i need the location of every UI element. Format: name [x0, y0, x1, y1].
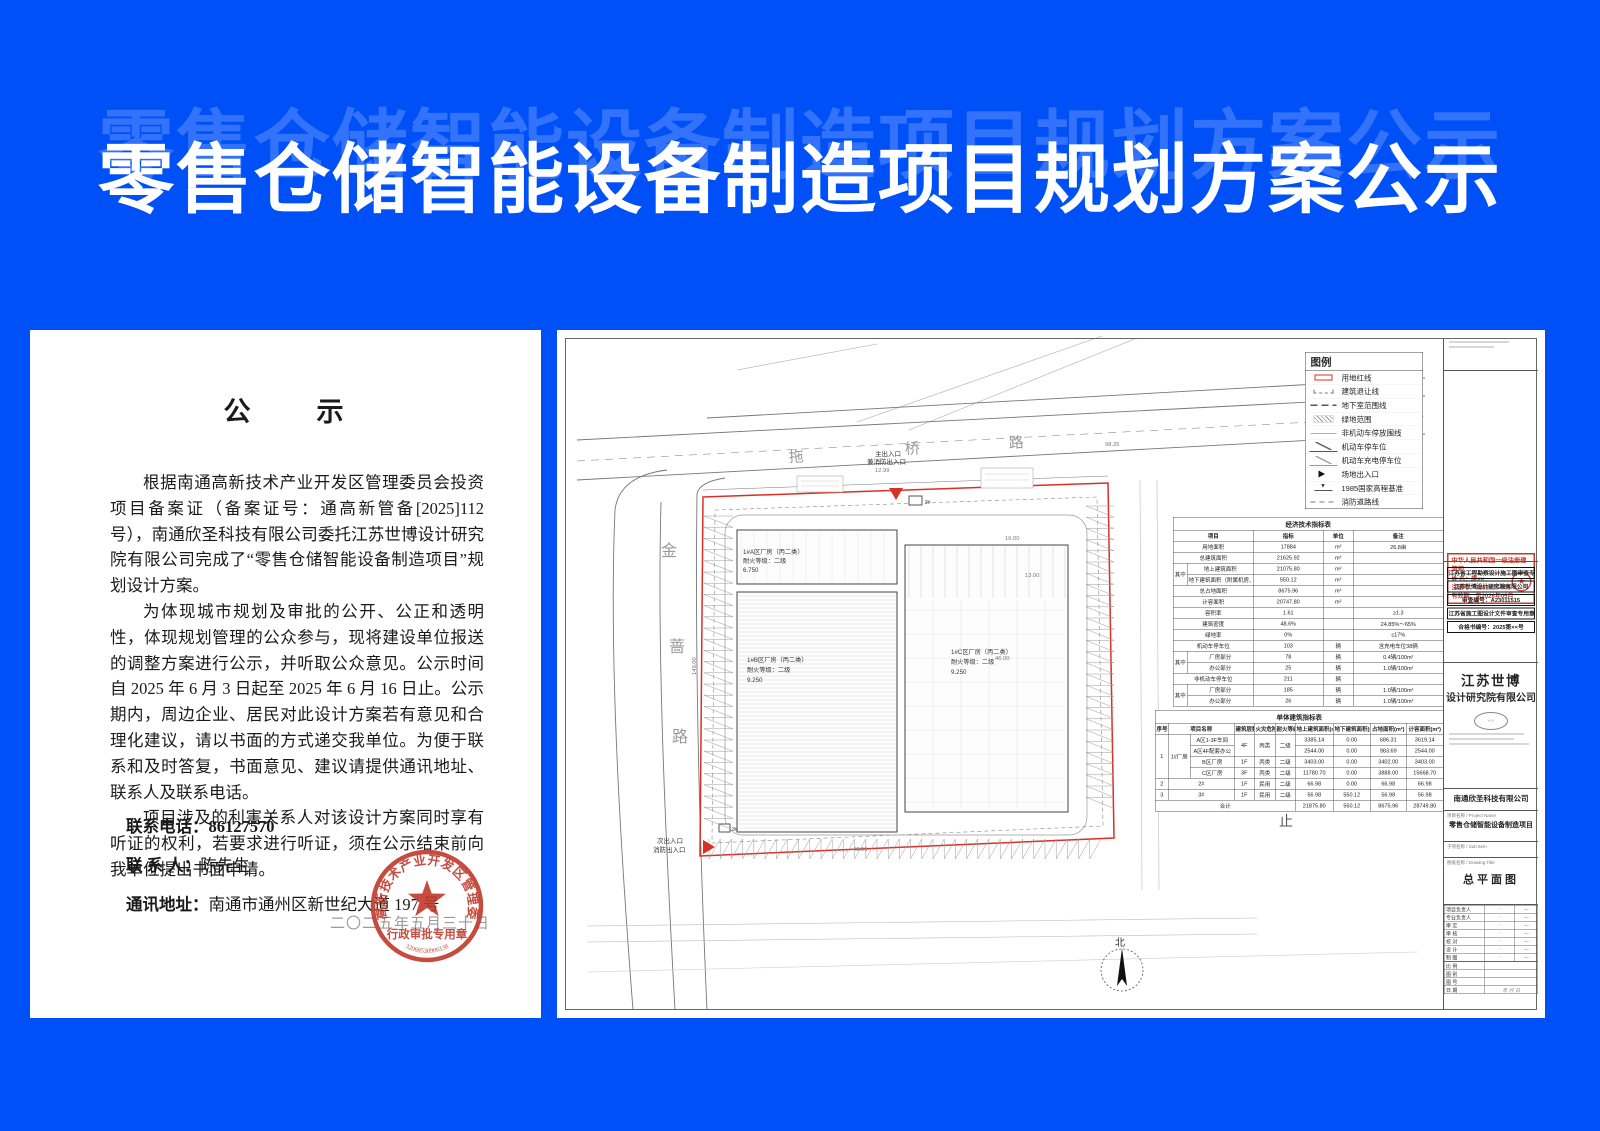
north-arrow: 北 [1101, 937, 1143, 991]
table-row: 办公部分26辆1.0辆/100m² [1173, 695, 1443, 706]
dimension-text: 46.00 [995, 656, 1010, 662]
meta-row: 比 例 [1444, 962, 1538, 970]
page-title: 零售仓储智能设备制造项目规划方案公示 [0, 118, 1600, 228]
firm-seal-icon: 〰 [1474, 712, 1508, 730]
table-row: 22#1F民用二级66.980.0066.9866.98 [1155, 778, 1443, 789]
audit-stamp: 江苏省施工图设计文件审查专用章 [1447, 608, 1535, 620]
legend-item: 机动车充电停车位 [1306, 454, 1423, 468]
page: { "colors": {"background_blue": "#0050f8… [0, 0, 1600, 1131]
table2-title: 单体建筑指标表 [1155, 710, 1444, 723]
building-c [905, 545, 1068, 812]
svg-text:耐火等级：二级: 耐火等级：二级 [743, 557, 786, 565]
legend-item-label: 机动车充电停车位 [1342, 455, 1402, 466]
tri-symbol-icon [1310, 469, 1338, 479]
road-name-char: 桥 [904, 440, 920, 458]
table-row: 地下建筑面积（附属机房、消防泵房）550.12m² [1173, 574, 1443, 585]
title-block: 中华人民共和国一级注册建筑师 姓 名：唐×× 注册号：3201826-005 有… [1443, 338, 1538, 1010]
signature-row: 校 对··〜 [1444, 937, 1538, 945]
firedash-symbol-icon [1310, 497, 1338, 507]
setback-symbol-icon [1310, 386, 1338, 396]
svg-text:1#B区厂房（丙二类）: 1#B区厂房（丙二类） [747, 656, 808, 664]
legend: 图例 用地红线建筑退让线地下室范围线绿地范围非机动车停放围线机动车停车位机动车充… [1305, 352, 1423, 509]
svg-text:32068530906138: 32068530906138 [404, 943, 450, 955]
building-a [737, 530, 897, 584]
road-name-char: 金 [661, 542, 677, 560]
zmark2-symbol-icon [1310, 455, 1338, 466]
table-row: 建筑密度48.6%24.85%～65% [1173, 618, 1443, 629]
design-firm-name: 江苏世博 [1444, 670, 1538, 690]
audit-stamp: 江苏省工程勘察设计施工图审查专用章 [1447, 567, 1535, 579]
revision-note [1444, 341, 1538, 371]
legend-item-label: 地下室范围线 [1342, 400, 1387, 411]
meta-row: 图 号 [1444, 978, 1538, 986]
dimension-line [703, 476, 1108, 490]
road-name-char: 拖 [788, 448, 804, 466]
official-seal: 南通高新技术产业开发区管理委员会 行政审批专用章 32068530906138 [352, 831, 502, 981]
meta-grid: 比 例图 别图 号日 期年 月 日 [1444, 962, 1538, 995]
seal-center-title: 行政审批专用章 [386, 927, 468, 941]
legend-item-label: 1985国家高程基准 [1342, 483, 1404, 494]
svg-text:9.250: 9.250 [951, 669, 967, 676]
table1-title: 经济技术指标表 [1173, 517, 1444, 530]
legend-item: 绿地范围 [1306, 412, 1423, 426]
table-row: A区4F配套办公2544.000.00983.692544.00 [1155, 745, 1443, 756]
table-row: 非机动车停车位211辆 [1173, 673, 1443, 684]
stray-label: 止 [1279, 813, 1293, 829]
svg-text:1#C区厂房（丙二类）: 1#C区厂房（丙二类） [951, 648, 1012, 656]
thin-symbol-icon [1310, 428, 1338, 438]
signature-row: 专业负责人··〜 [1444, 913, 1538, 921]
main-entrance-label: 主出入口 [875, 449, 901, 458]
legend-item: 机动车停车位 [1306, 440, 1423, 454]
stamp-section: 中华人民共和国一级注册建筑师 姓 名：唐×× 注册号：3201826-005 有… [1444, 371, 1538, 562]
legend-item: 非机动车停放围线 [1306, 426, 1423, 440]
subitem-box: 子项名称 / Sub Item [1444, 842, 1538, 858]
dash-symbol-icon [1310, 400, 1338, 410]
road-name-char: 路 [672, 728, 688, 746]
notice-panel: 公 示 根据南通高新技术产业开发区管理委员会投资项目备案证（备案证号：通高新管备… [30, 330, 541, 1018]
table-row: 其中厂房部分78辆0.4辆/100m² [1173, 651, 1443, 662]
seal-star-icon [408, 880, 446, 916]
signature-row: 审 定··〜 [1444, 921, 1538, 929]
signature-row: 设 计··〜 [1444, 945, 1538, 953]
legend-item-label: 建筑退让线 [1342, 386, 1380, 397]
hatch-symbol-icon [1310, 414, 1338, 424]
sheet-name-box: 图纸名称 / Drawing Title 总平面图 [1444, 858, 1538, 905]
meta-row: 日 期年 月 日 [1444, 986, 1538, 994]
dimension-text: 40.00 [853, 847, 868, 853]
main-entrance-sublabel: 兼消防出入口 [867, 457, 906, 466]
svg-text:1#A区厂房（丙二类）: 1#A区厂房（丙二类） [743, 548, 804, 556]
audit-stamp: 合格书编号：2025第××号 [1447, 621, 1535, 633]
legend-item: 消防道路线 [1306, 495, 1423, 508]
table-row: B区厂房1F丙类二级3403.000.003402.003403.00 [1155, 756, 1443, 767]
road-name-char: 蔷 [669, 638, 685, 656]
table-row: 容积率1.61≥1.3 [1173, 607, 1443, 618]
economic-indicator-table: 经济技术指标表 项目指标单位备注用地面积17884m²26.8亩总建筑面积216… [1173, 517, 1443, 707]
site-plan-sheet: 拖 桥 路 金 蔷 路 [557, 330, 1545, 1018]
signature-row: 审 核··〜 [1444, 929, 1538, 937]
table-row: 总占地面积8675.96m² [1173, 585, 1443, 596]
legend-item-label: 机动车停车位 [1342, 441, 1387, 452]
project-name-box: 项目名称 / Project Name 零售仓储智能设备制造项目 [1444, 811, 1538, 842]
secondary-entrance-sublabel: 消防出入口 [653, 845, 686, 854]
legend-item-label: 非机动车停放围线 [1342, 428, 1402, 439]
secondary-entrance-label: 次出入口 [657, 836, 683, 845]
table-row: C区厂房3F丙类二级11780.700.003888.0015668.70 [1155, 767, 1443, 778]
dimension-text: 12.99 [875, 468, 890, 474]
table-row: 计容面积20747.80m² [1173, 596, 1443, 607]
table-row: 合计21875.80550.128675.9628749.80 [1155, 800, 1443, 811]
audit-stamp: 江苏世博设计研究院有限公司 [1447, 581, 1535, 593]
table-row: 总建筑面积21625.92m² [1173, 552, 1443, 563]
dimension-text: 16.00 [1005, 536, 1020, 542]
meta-row: 图 别 [1444, 970, 1538, 978]
audit-stamp: 审查编号：A23011515 [1447, 594, 1535, 606]
table-row: 其中地上建筑面积21075.80m² [1173, 563, 1443, 574]
signature-grid: 项目负责人··〜专业负责人··〜审 定··〜审 核··〜校 对··〜设 计··〜… [1444, 905, 1538, 962]
legend-item: 建筑退让线 [1306, 385, 1423, 399]
legend-items: 用地红线建筑退让线地下室范围线绿地范围非机动车停放围线机动车停车位机动车充电停车… [1306, 371, 1423, 508]
notice-heading: 公 示 [30, 390, 541, 429]
dimension-text: 13.00 [1025, 573, 1040, 579]
adjacent-parcel-lines [737, 336, 1137, 430]
table-row: 用地面积17884m²26.8亩 [1173, 541, 1443, 552]
note-boxes [797, 468, 1033, 492]
svg-text:2#: 2# [925, 500, 931, 506]
table-row: 绿地率0%≤17% [1173, 629, 1443, 640]
building-2 [909, 496, 922, 505]
legend-item: 地下室范围线 [1306, 399, 1423, 413]
building-indicator-table: 单体建筑指标表 序号项目名称建筑层数火灾危险性耐火等级地上建筑面积(m²)地下建… [1155, 710, 1443, 812]
svg-text:3#: 3# [732, 827, 738, 833]
dimension-text: 149.00 [692, 657, 698, 675]
client-box: 南通欣圣科技有限公司 [1444, 789, 1538, 811]
svg-text:耐火等级：二级: 耐火等级：二级 [951, 658, 994, 666]
dimension-text: 98.35 [1105, 442, 1120, 448]
svg-text:耐火等级：二级: 耐火等级：二级 [747, 666, 790, 674]
official-seal-icon: 南通高新技术产业开发区管理委员会 行政审批专用章 32068530906138 [352, 831, 502, 981]
north-label: 北 [1115, 937, 1125, 949]
table-row: 项目指标单位备注 [1173, 530, 1443, 541]
legend-item: 场地出入口 [1306, 468, 1423, 482]
notice-paragraph: 根据南通高新技术产业开发区管理委员会投资项目备案证（备案证号：通高新管备[202… [110, 470, 484, 599]
table-row: 33#1F民用二级56.98550.1256.9856.98 [1155, 789, 1443, 800]
table-row: 其中厂房部分185辆1.0辆/100m² [1173, 684, 1443, 695]
legend-item: 用地红线 [1306, 371, 1423, 385]
zmark-symbol-icon [1310, 441, 1338, 452]
table-row: 机动车停车位103辆含充电车位38辆 [1173, 640, 1443, 651]
legend-item: 1985国家高程基准 [1306, 481, 1423, 495]
legend-item-label: 消防道路线 [1342, 497, 1380, 508]
road-name-char: 路 [1008, 434, 1024, 452]
signature-row: 项目负责人··〜 [1444, 905, 1538, 913]
svg-text:9.250: 9.250 [747, 677, 763, 684]
main-entrance-marker [889, 488, 903, 500]
legend-item-label: 绿地范围 [1342, 414, 1372, 425]
redrect-symbol-icon [1310, 373, 1338, 383]
table-row: 办公部分25辆1.0辆/100m² [1173, 662, 1443, 673]
signature-row: 制 图··〜 [1444, 953, 1538, 961]
elev-symbol-icon [1310, 483, 1338, 493]
legend-item-label: 场地出入口 [1342, 469, 1380, 480]
design-firm-section: 江苏世博 设计研究院有限公司 〰 [1444, 663, 1538, 789]
seal-serial: 32068530906138 [404, 943, 450, 955]
audit-stamp-section: 江苏省工程勘察设计施工图审查专用章 江苏世博设计研究院有限公司 审查编号：A23… [1444, 567, 1538, 663]
table-row: 11#厂房A区1-3F车间4F丙类二级3385.140.00686.313619… [1155, 734, 1443, 745]
design-firm-name: 设计研究院有限公司 [1444, 690, 1538, 705]
legend-item-label: 用地红线 [1342, 372, 1372, 383]
notice-paragraph: 为体现城市规划及审批的公开、公正和透明性，体现规划管理的公众参与，现将建设单位报… [110, 599, 484, 805]
legend-title: 图例 [1306, 353, 1423, 372]
svg-text:6.750: 6.750 [743, 567, 759, 574]
table-row: 序号项目名称建筑层数火灾危险性耐火等级地上建筑面积(m²)地下建筑面积(m²)占… [1155, 723, 1443, 734]
